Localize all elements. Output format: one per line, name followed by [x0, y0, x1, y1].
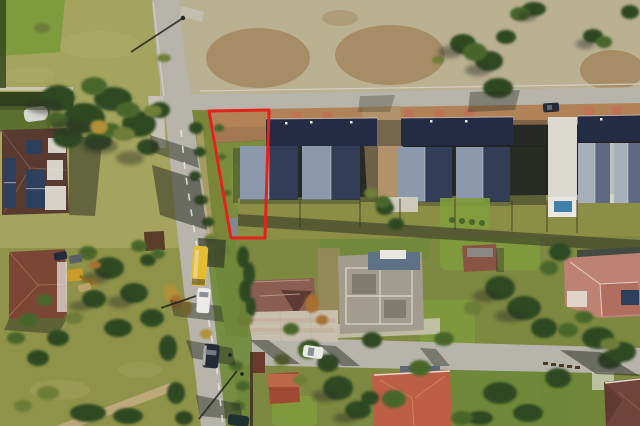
backyard-pool [554, 201, 572, 212]
garage-roofs [266, 115, 640, 147]
white-van [196, 288, 211, 314]
dormers [45, 138, 66, 210]
aerial-photo-canvas [0, 0, 640, 426]
dark-car-top-road [543, 102, 560, 112]
large-pink-roof-house [564, 247, 640, 318]
dark-suv [202, 343, 220, 368]
roadside-outbuilding [252, 352, 265, 373]
construction-site [338, 250, 424, 334]
small-brown-house [144, 231, 165, 251]
yellow-bus [191, 245, 209, 286]
terraced-house-row [238, 115, 640, 252]
lamp-head [181, 16, 185, 20]
brown-fence [250, 352, 253, 426]
aerial-photo [0, 0, 640, 426]
small-barn-house [462, 244, 504, 272]
solar-panels [621, 290, 639, 305]
